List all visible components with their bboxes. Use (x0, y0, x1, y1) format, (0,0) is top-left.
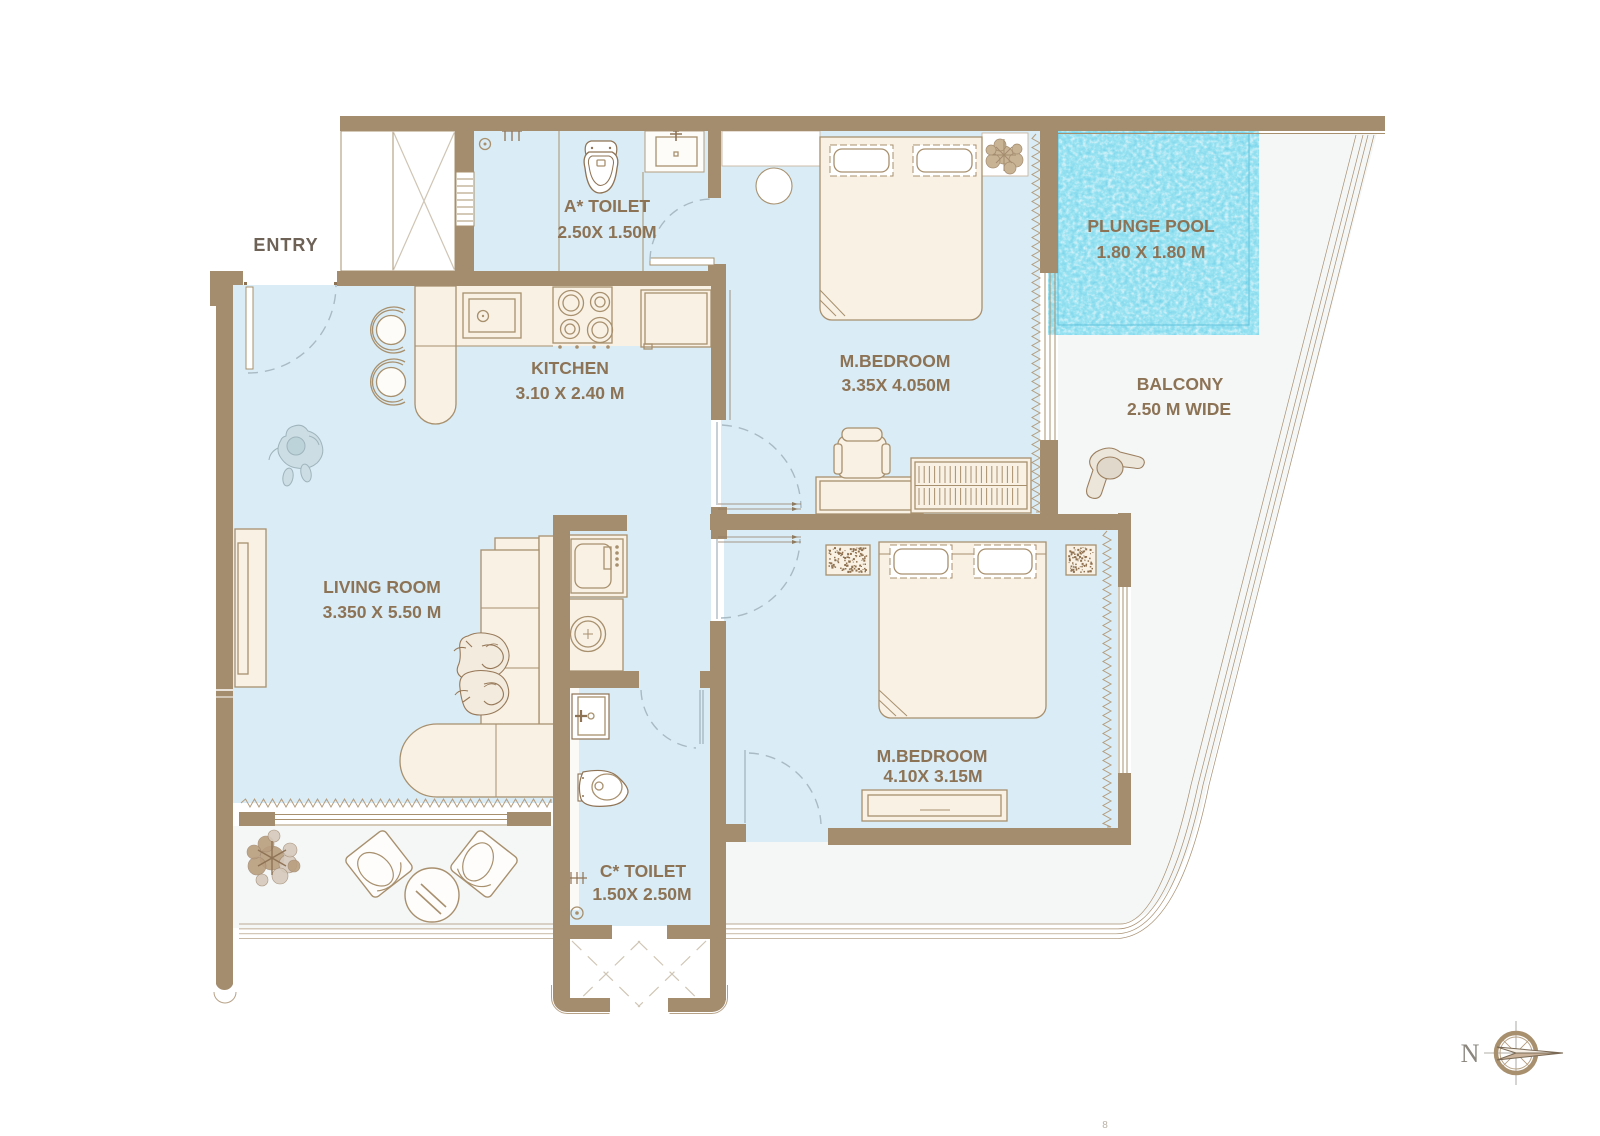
svg-text:KITCHEN: KITCHEN (531, 358, 609, 378)
svg-text:3.10 X 2.40 M: 3.10 X 2.40 M (516, 383, 625, 403)
svg-text:M.BEDROOM: M.BEDROOM (840, 351, 951, 371)
svg-text:1.50X 2.50M: 1.50X 2.50M (592, 884, 691, 904)
svg-text:LIVING ROOM: LIVING ROOM (323, 577, 441, 597)
svg-text:3.350 X 5.50 M: 3.350 X 5.50 M (323, 602, 442, 622)
svg-text:4.10X 3.15M: 4.10X 3.15M (883, 766, 982, 786)
svg-text:N: N (1461, 1039, 1480, 1068)
svg-text:PLUNGE POOL: PLUNGE POOL (1087, 216, 1215, 236)
svg-text:2.50X 1.50M: 2.50X 1.50M (557, 222, 656, 242)
svg-text:2.50 M WIDE: 2.50 M WIDE (1127, 399, 1231, 419)
svg-text:M.BEDROOM: M.BEDROOM (877, 746, 988, 766)
svg-text:ENTRY: ENTRY (253, 235, 318, 255)
svg-text:3.35X 4.050M: 3.35X 4.050M (842, 375, 951, 395)
svg-text:BALCONY: BALCONY (1137, 374, 1224, 394)
svg-text:A* TOILET: A* TOILET (564, 196, 651, 216)
svg-text:C* TOILET: C* TOILET (600, 861, 687, 881)
svg-text:1.80 X 1.80 M: 1.80 X 1.80 M (1097, 242, 1206, 262)
svg-text:8: 8 (1102, 1120, 1108, 1131)
